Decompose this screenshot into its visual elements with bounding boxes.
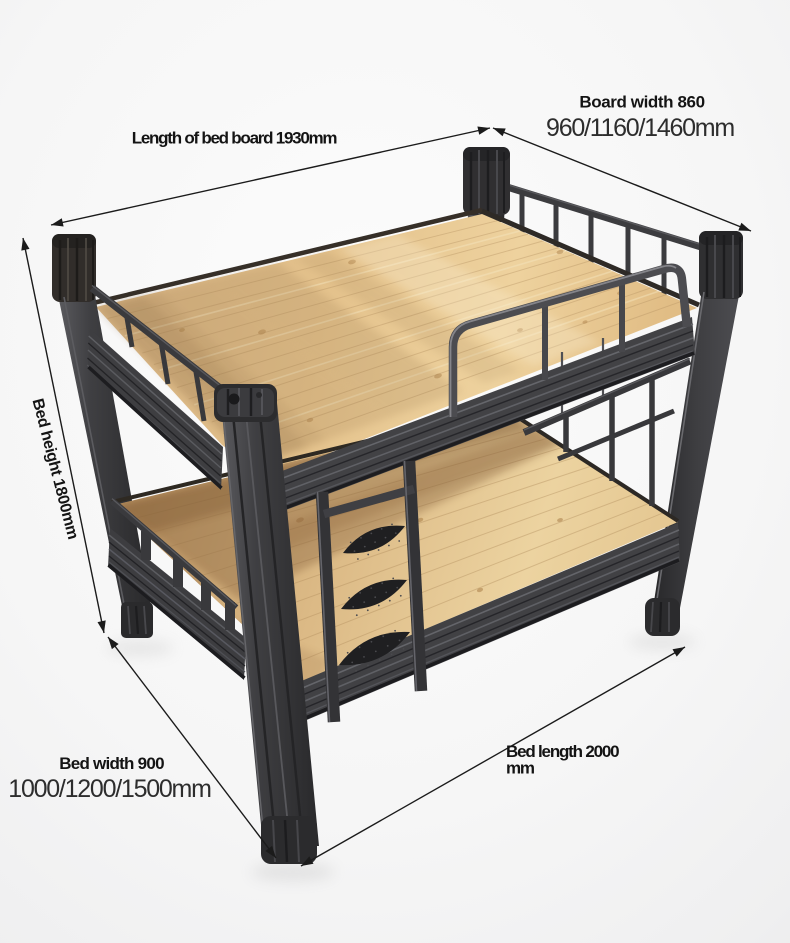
svg-text:Bed width 900: Bed width 900 xyxy=(59,754,164,773)
svg-text:Length of bed board 1930mm: Length of bed board 1930mm xyxy=(132,129,338,148)
svg-text:1000/1200/1500mm: 1000/1200/1500mm xyxy=(8,775,211,803)
svg-text:960/1160/1460mm: 960/1160/1460mm xyxy=(546,114,734,142)
svg-text:mm: mm xyxy=(506,759,535,778)
svg-text:Board width 860: Board width 860 xyxy=(579,93,704,112)
